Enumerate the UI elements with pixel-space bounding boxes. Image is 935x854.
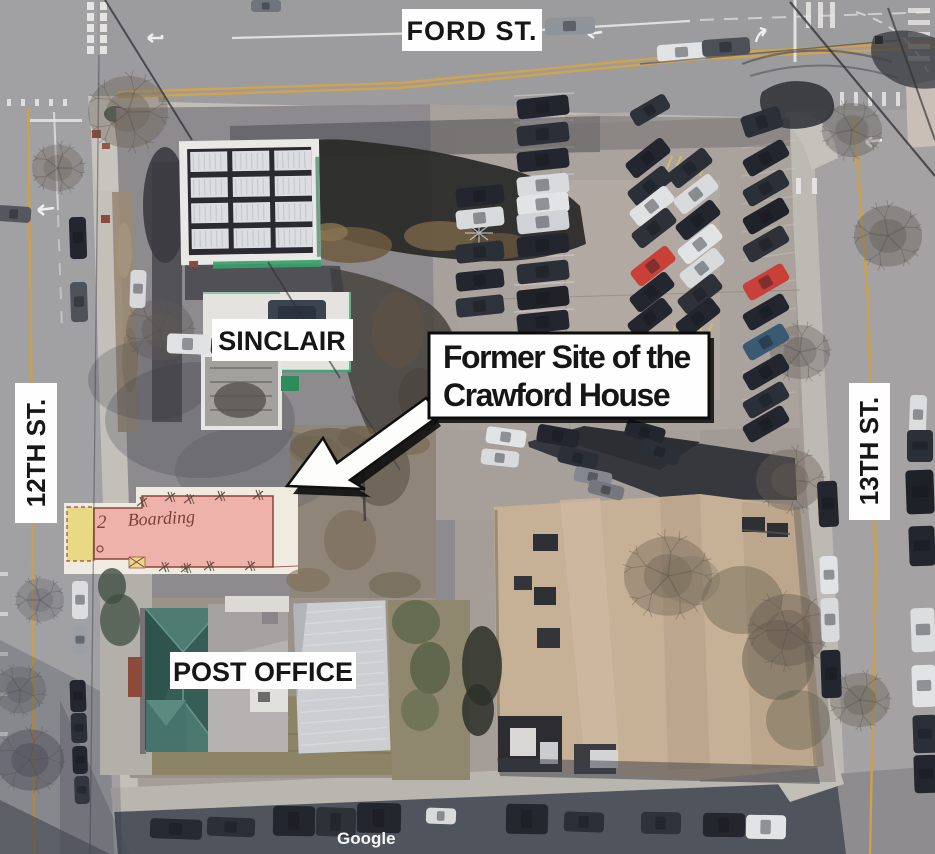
svg-text:SINCLAIR: SINCLAIR bbox=[218, 326, 346, 356]
svg-text:13TH ST.: 13TH ST. bbox=[854, 397, 884, 505]
svg-text:POST OFFICE: POST OFFICE bbox=[173, 657, 353, 687]
svg-text:Crawford House: Crawford House bbox=[443, 377, 670, 413]
svg-text:FORD ST.: FORD ST. bbox=[406, 16, 537, 46]
svg-text:Google: Google bbox=[337, 829, 396, 848]
svg-text:2: 2 bbox=[97, 512, 107, 533]
svg-text:Boarding: Boarding bbox=[127, 506, 195, 529]
svg-text:Former Site of the: Former Site of the bbox=[443, 339, 691, 375]
svg-text:12TH ST.: 12TH ST. bbox=[21, 399, 51, 507]
svg-text:°9: °9 bbox=[180, 564, 189, 574]
